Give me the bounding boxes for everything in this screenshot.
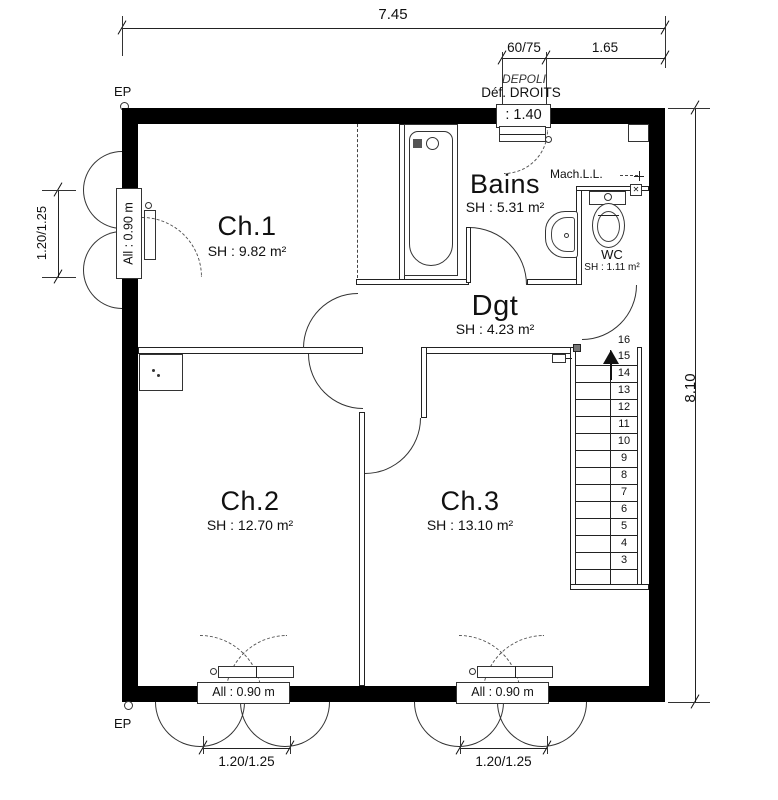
window-leaf-line bbox=[515, 666, 516, 678]
dim-bottom-window1: 1.20/1.25 bbox=[203, 754, 290, 770]
room-ch3-area: SH : 13.10 m² bbox=[405, 517, 535, 534]
shutter-arc bbox=[414, 702, 504, 747]
flue-box bbox=[628, 124, 649, 142]
wall-ch2-north bbox=[138, 347, 363, 354]
wall-bains-south-a bbox=[356, 279, 469, 285]
stair-step-number: 16 bbox=[612, 334, 636, 347]
room-wc-area: SH : 1.11 m² bbox=[577, 262, 647, 274]
room-ch2-name: Ch.2 bbox=[190, 486, 310, 516]
stair-step-number: 10 bbox=[612, 435, 636, 449]
dim-line-bottom2 bbox=[460, 748, 547, 749]
exterior-wall bbox=[122, 108, 665, 702]
room-bains-name: Bains bbox=[440, 169, 570, 199]
def-droits-label: Déf. DROITS bbox=[461, 85, 581, 101]
window-hinge bbox=[469, 668, 476, 675]
dim-bottom-window2: 1.20/1.25 bbox=[460, 754, 547, 770]
dim-ext-line bbox=[665, 16, 666, 68]
sink-basin bbox=[551, 217, 575, 252]
ep-bottom-label: EP bbox=[114, 716, 140, 730]
dim-ext-line bbox=[547, 736, 548, 754]
dim-top-right: 1.65 bbox=[575, 40, 635, 56]
floor-plan-page: { "dimensions": { "top_total": "7.45", "… bbox=[0, 0, 778, 800]
shutter-arc bbox=[155, 702, 245, 747]
dim-ext-line bbox=[203, 736, 204, 754]
stair-step-number: 13 bbox=[612, 384, 636, 398]
stair-step-number: 4 bbox=[612, 537, 636, 551]
stair-step-number: 11 bbox=[612, 418, 636, 432]
room-wc-name: WC bbox=[587, 247, 637, 262]
window-leaf-line bbox=[256, 666, 257, 678]
stair-step-number: 7 bbox=[612, 486, 636, 500]
outlet-symbol bbox=[552, 354, 566, 363]
wall-bains-south-b bbox=[527, 279, 578, 285]
toilet-flush-button bbox=[604, 193, 612, 201]
switch-box-icon bbox=[573, 344, 581, 352]
shutter-arc bbox=[240, 702, 330, 747]
stair-step-number: 3 bbox=[612, 554, 636, 568]
drain-icon bbox=[426, 137, 439, 150]
room-dgt-name: Dgt bbox=[440, 290, 550, 322]
window-bottom1-label: All : 0.90 m bbox=[197, 685, 290, 701]
stair-step-number: 14 bbox=[612, 367, 636, 381]
window-left-label: All : 0.90 m bbox=[122, 188, 137, 280]
ep-top-label: EP bbox=[114, 84, 140, 98]
stair-step-number: 9 bbox=[612, 452, 636, 466]
dim-line-top-2 bbox=[502, 58, 665, 59]
dim-line-bottom1 bbox=[203, 748, 290, 749]
def-droits-dashed-line bbox=[357, 124, 359, 283]
ep-bottom-marker bbox=[124, 701, 133, 710]
window-hinge bbox=[145, 202, 152, 209]
electrical-box-icon: ✕ bbox=[630, 184, 642, 196]
faucet-icon bbox=[413, 139, 422, 148]
window-hinge bbox=[210, 668, 217, 675]
window-leaf bbox=[144, 210, 156, 260]
stair-step-number: 8 bbox=[612, 469, 636, 483]
dim-left-window: 1.20/1.25 bbox=[34, 191, 50, 275]
closet-dot bbox=[157, 374, 160, 377]
door-leaf-bains bbox=[466, 227, 471, 283]
stair-step-number: 12 bbox=[612, 401, 636, 415]
room-dgt-area: SH : 4.23 m² bbox=[440, 321, 550, 338]
toilet-seat-line bbox=[598, 215, 619, 216]
dim-ext-line bbox=[122, 16, 123, 56]
wall-stair-east bbox=[637, 347, 642, 590]
cross-marker bbox=[639, 171, 640, 181]
dim-right-total: 8.10 bbox=[682, 364, 698, 412]
closet-box bbox=[139, 354, 183, 391]
room-ch3-name: Ch.3 bbox=[410, 486, 530, 516]
stair-step-number: 6 bbox=[612, 503, 636, 517]
dim-ext-line bbox=[668, 702, 710, 703]
wall-ch3-north bbox=[421, 347, 572, 354]
closet-dot bbox=[152, 369, 155, 372]
window-top-height-value: : 1.40 bbox=[496, 107, 551, 124]
room-ch2-area: SH : 12.70 m² bbox=[185, 517, 315, 534]
outlet-symbol-line bbox=[566, 358, 572, 359]
stair-step-number: 5 bbox=[612, 520, 636, 534]
dim-line-top bbox=[122, 28, 665, 29]
wall-stair-west bbox=[570, 347, 576, 590]
sink-drain-icon bbox=[564, 233, 569, 238]
depoli-label: DEPOLI bbox=[489, 72, 559, 85]
window-hinge bbox=[545, 136, 552, 143]
dim-line-left bbox=[58, 190, 59, 277]
dim-ext-line bbox=[290, 736, 291, 754]
room-ch1-name: Ch.1 bbox=[187, 211, 307, 241]
room-bains-area: SH : 5.31 m² bbox=[440, 199, 570, 216]
stair-tread bbox=[576, 569, 637, 570]
wall-notch-jamb bbox=[421, 347, 427, 418]
dim-ext-line bbox=[460, 736, 461, 754]
dim-ext-line bbox=[668, 108, 710, 109]
stair-step-number: 15 bbox=[612, 350, 636, 364]
window-leaf-line bbox=[500, 134, 545, 135]
window-bottom2-label: All : 0.90 m bbox=[456, 685, 549, 701]
dim-top-total: 7.45 bbox=[343, 6, 443, 22]
dim-ext-line bbox=[42, 277, 76, 278]
shutter-arc bbox=[497, 702, 587, 747]
room-ch1-area: SH : 9.82 m² bbox=[187, 243, 307, 260]
